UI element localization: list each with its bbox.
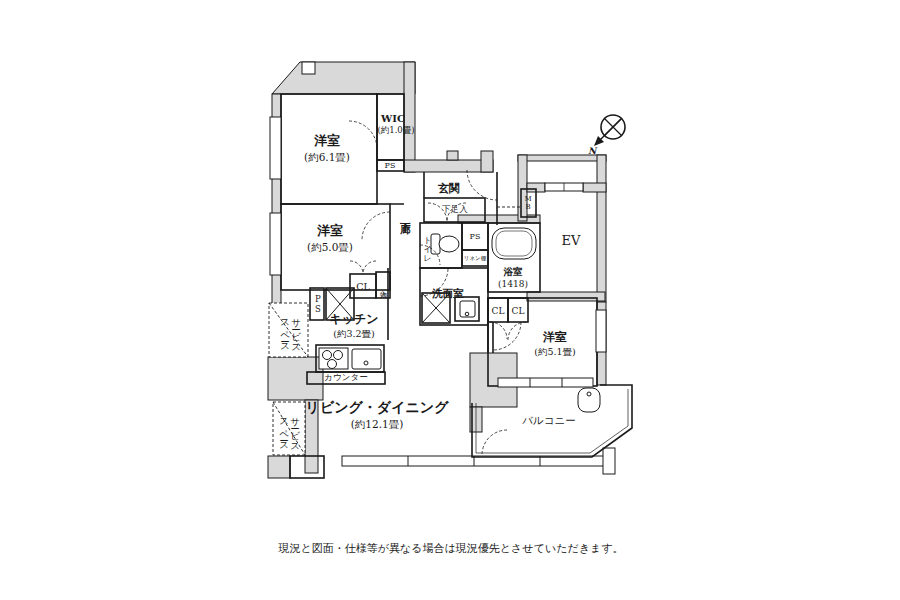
kitchen-size: (約3.2畳) bbox=[333, 329, 375, 340]
bedroom-c-size: (約5.1畳) bbox=[534, 347, 576, 358]
wall-ev-west bbox=[518, 155, 527, 221]
living-dining-size: (約12.1畳) bbox=[351, 418, 404, 430]
meter-box-label: MB bbox=[524, 195, 532, 211]
bedroom-a-label: 洋室 bbox=[314, 134, 340, 149]
wall-ev-door-r bbox=[583, 183, 606, 192]
wic-size: (約1.0畳) bbox=[377, 126, 414, 136]
bathroom-size: (1418) bbox=[498, 279, 528, 289]
ps-top-label: PS bbox=[385, 161, 396, 170]
bedroom-c-label: 洋室 bbox=[543, 331, 567, 345]
wall-block-west bbox=[268, 357, 323, 400]
stove-burner bbox=[328, 360, 337, 369]
ps-left-label: PS bbox=[312, 294, 322, 314]
wall-block-sw bbox=[268, 456, 290, 478]
floorplan-page: 洋室 (約6.1畳) WIC (約1.0畳) PS 玄関 下足入 廊下 洋室 (… bbox=[0, 0, 900, 600]
shoe-cabinet-label: 下足入 bbox=[442, 205, 468, 215]
closet-kitchen-label: CL bbox=[356, 282, 370, 293]
toilet-bowl-icon bbox=[439, 236, 459, 252]
bedroomc-west-wall bbox=[488, 322, 493, 353]
window-bedroom-a bbox=[270, 117, 281, 179]
door-bedroom-c bbox=[493, 322, 521, 350]
window-bedroom-c-east bbox=[596, 310, 606, 352]
wall-entrance-north bbox=[404, 160, 493, 172]
wall-bump bbox=[447, 151, 458, 160]
balcony-sink-drain bbox=[587, 392, 591, 396]
wall-wic-east bbox=[404, 62, 415, 172]
door-entrance bbox=[467, 170, 497, 200]
washroom-label: 洗面室 bbox=[432, 287, 464, 299]
window-bedroom-c-south bbox=[498, 378, 593, 387]
wall-notch bbox=[302, 62, 315, 74]
toilet-label: トイレ bbox=[422, 231, 431, 258]
linen-shelf-label: リネン棚 bbox=[464, 255, 486, 261]
closet-b-label: CL bbox=[512, 306, 525, 316]
door-balcony bbox=[482, 430, 507, 455]
bedroom-a-outline bbox=[281, 94, 377, 204]
wall-top-band bbox=[272, 62, 415, 94]
counter-label: カウンター bbox=[324, 373, 367, 383]
compass-north-label: N bbox=[588, 146, 596, 156]
kitchen-label: キッチン bbox=[329, 313, 378, 327]
bedroom-b-label: 洋室 bbox=[317, 224, 343, 239]
floorplan-drawing bbox=[0, 0, 900, 600]
service-space-lower-label: サービススペース bbox=[279, 407, 301, 451]
bathroom-label: 浴室 bbox=[504, 267, 523, 278]
washbasin-drain bbox=[465, 312, 469, 316]
closet-a-label: CL bbox=[492, 306, 505, 316]
compass-icon bbox=[594, 115, 625, 146]
balcony-label: バルコニー bbox=[522, 414, 575, 426]
ps-mid-label: PS bbox=[470, 232, 481, 241]
stove-burner bbox=[323, 351, 332, 360]
disclaimer-text: 現況と図面・仕様等が異なる場合は現況優先とさせていただきます。 bbox=[279, 541, 624, 556]
bedroom-b-size: (約5.0畳) bbox=[307, 241, 353, 253]
wall-ev-east bbox=[597, 155, 606, 302]
door-closet-kitchen bbox=[350, 261, 376, 274]
service-space-upper-label: サービススペース bbox=[280, 308, 302, 352]
stove-burner bbox=[334, 351, 343, 360]
living-dining-label: リビング・ダイニング bbox=[306, 399, 449, 415]
door-bedroom-a bbox=[349, 121, 377, 149]
bedroom-a-size: (約6.1畳) bbox=[304, 151, 350, 163]
elevator-label: EV bbox=[562, 234, 581, 249]
wall-ev-bottom bbox=[527, 292, 605, 301]
wall-entrance-end bbox=[481, 151, 493, 172]
wic-label: WIC bbox=[381, 113, 405, 125]
sink-drain bbox=[364, 361, 368, 365]
entrance-label: 玄関 bbox=[438, 183, 460, 196]
window-ld-east bbox=[603, 448, 615, 474]
door-bedroom-b bbox=[362, 212, 390, 240]
sink-icon bbox=[352, 349, 381, 369]
window-bedroom-b bbox=[270, 213, 281, 275]
bathtub-inner bbox=[496, 231, 532, 256]
